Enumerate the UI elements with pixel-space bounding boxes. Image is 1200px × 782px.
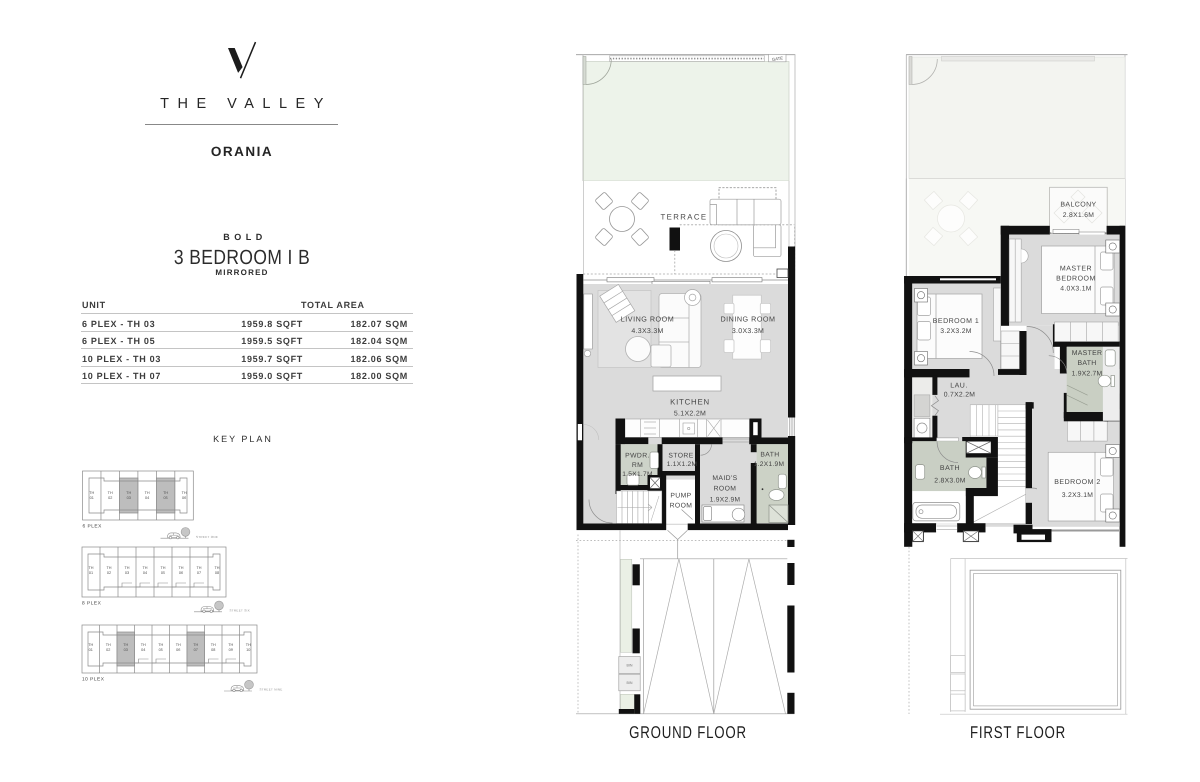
svg-text:2.8X1.6M: 2.8X1.6M (1063, 212, 1095, 219)
svg-text:0.7X2.2M: 0.7X2.2M (944, 392, 976, 399)
svg-text:BEDROOM 1: BEDROOM 1 (933, 318, 980, 325)
svg-text:BEDROOM 2: BEDROOM 2 (1054, 479, 1101, 486)
svg-text:2.8X3.0M: 2.8X3.0M (934, 478, 966, 485)
svg-text:1.9X2.7M: 1.9X2.7M (1072, 371, 1103, 378)
svg-text:3.2X3.2M: 3.2X3.2M (940, 328, 972, 335)
svg-text:BATH: BATH (1077, 360, 1096, 367)
svg-text:3.2X3.1M: 3.2X3.1M (1062, 492, 1094, 499)
svg-text:BALCONY: BALCONY (1060, 202, 1096, 209)
svg-text:BEDROOM: BEDROOM (1056, 276, 1096, 283)
svg-text:LAU.: LAU. (950, 383, 968, 390)
svg-text:4.0X3.1M: 4.0X3.1M (1060, 286, 1092, 293)
svg-text:MASTER: MASTER (1072, 350, 1103, 357)
svg-text:BATH: BATH (940, 465, 960, 472)
svg-text:MASTER: MASTER (1060, 266, 1092, 273)
